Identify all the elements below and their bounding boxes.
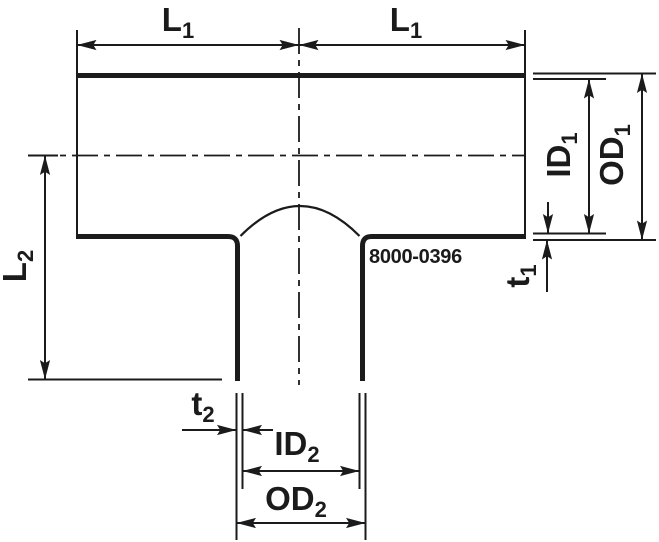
od2-label: OD2 [265,480,327,522]
l1-left-label: L1 [162,1,194,43]
l1-right-label: L1 [390,1,422,43]
tee-fitting-drawing: L1 L1 ID1 OD1 t1 L2 t2 ID2 OD2 8000-0396 [0,0,659,542]
tee-body-outline [77,76,525,382]
crotch-curve [241,206,360,236]
l2-label: L2 [0,250,38,282]
main-pipe-bottom-left-and-branch-left-edge [77,237,238,382]
id2-label: ID2 [274,425,319,467]
id1-label: ID1 [540,132,582,177]
t1-label: t1 [499,264,541,287]
od1-label: OD1 [593,124,635,186]
tee-fitting-diagram: L1 L1 ID1 OD1 t1 L2 t2 ID2 OD2 8000-0396 [0,0,659,542]
t2-label: t2 [191,385,214,427]
part-number: 8000-0396 [369,246,462,268]
